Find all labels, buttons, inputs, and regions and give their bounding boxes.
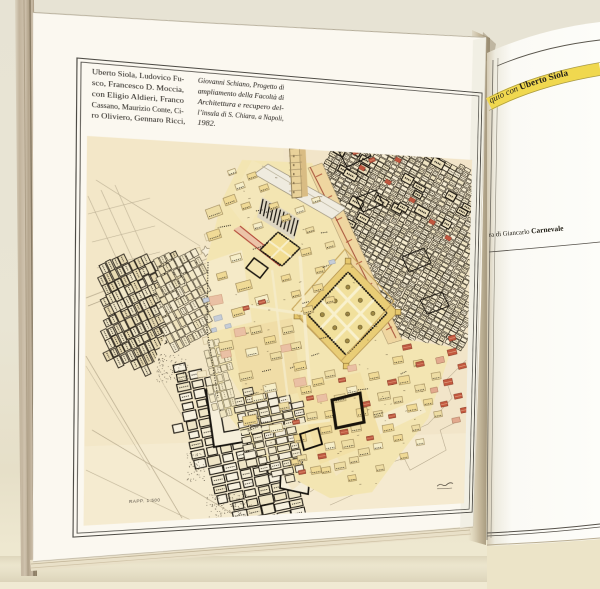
svg-text:1982.: 1982.	[197, 118, 216, 128]
